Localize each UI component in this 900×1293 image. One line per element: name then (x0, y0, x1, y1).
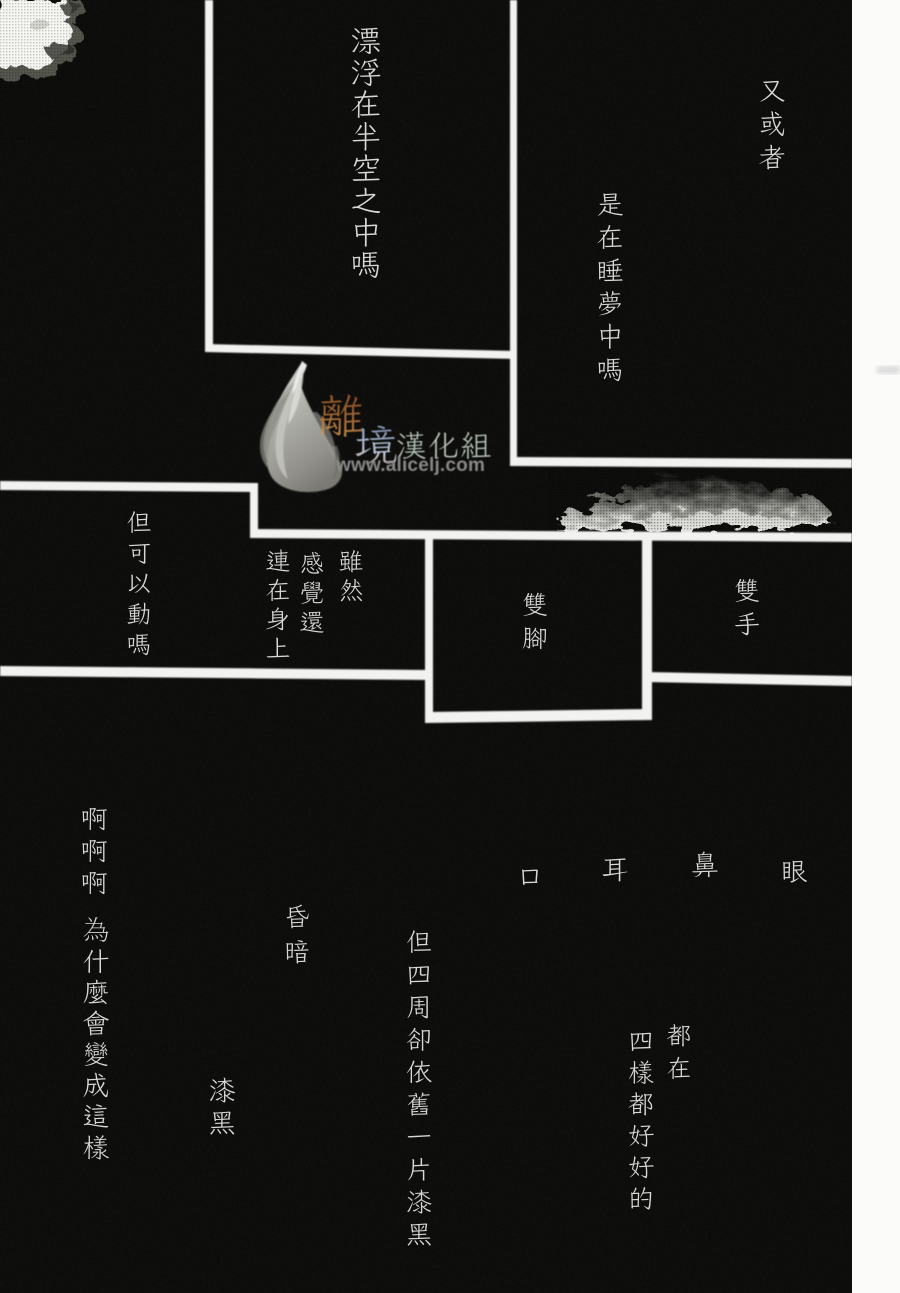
svg-text:www.alicelj.com: www.alicelj.com (335, 455, 485, 476)
